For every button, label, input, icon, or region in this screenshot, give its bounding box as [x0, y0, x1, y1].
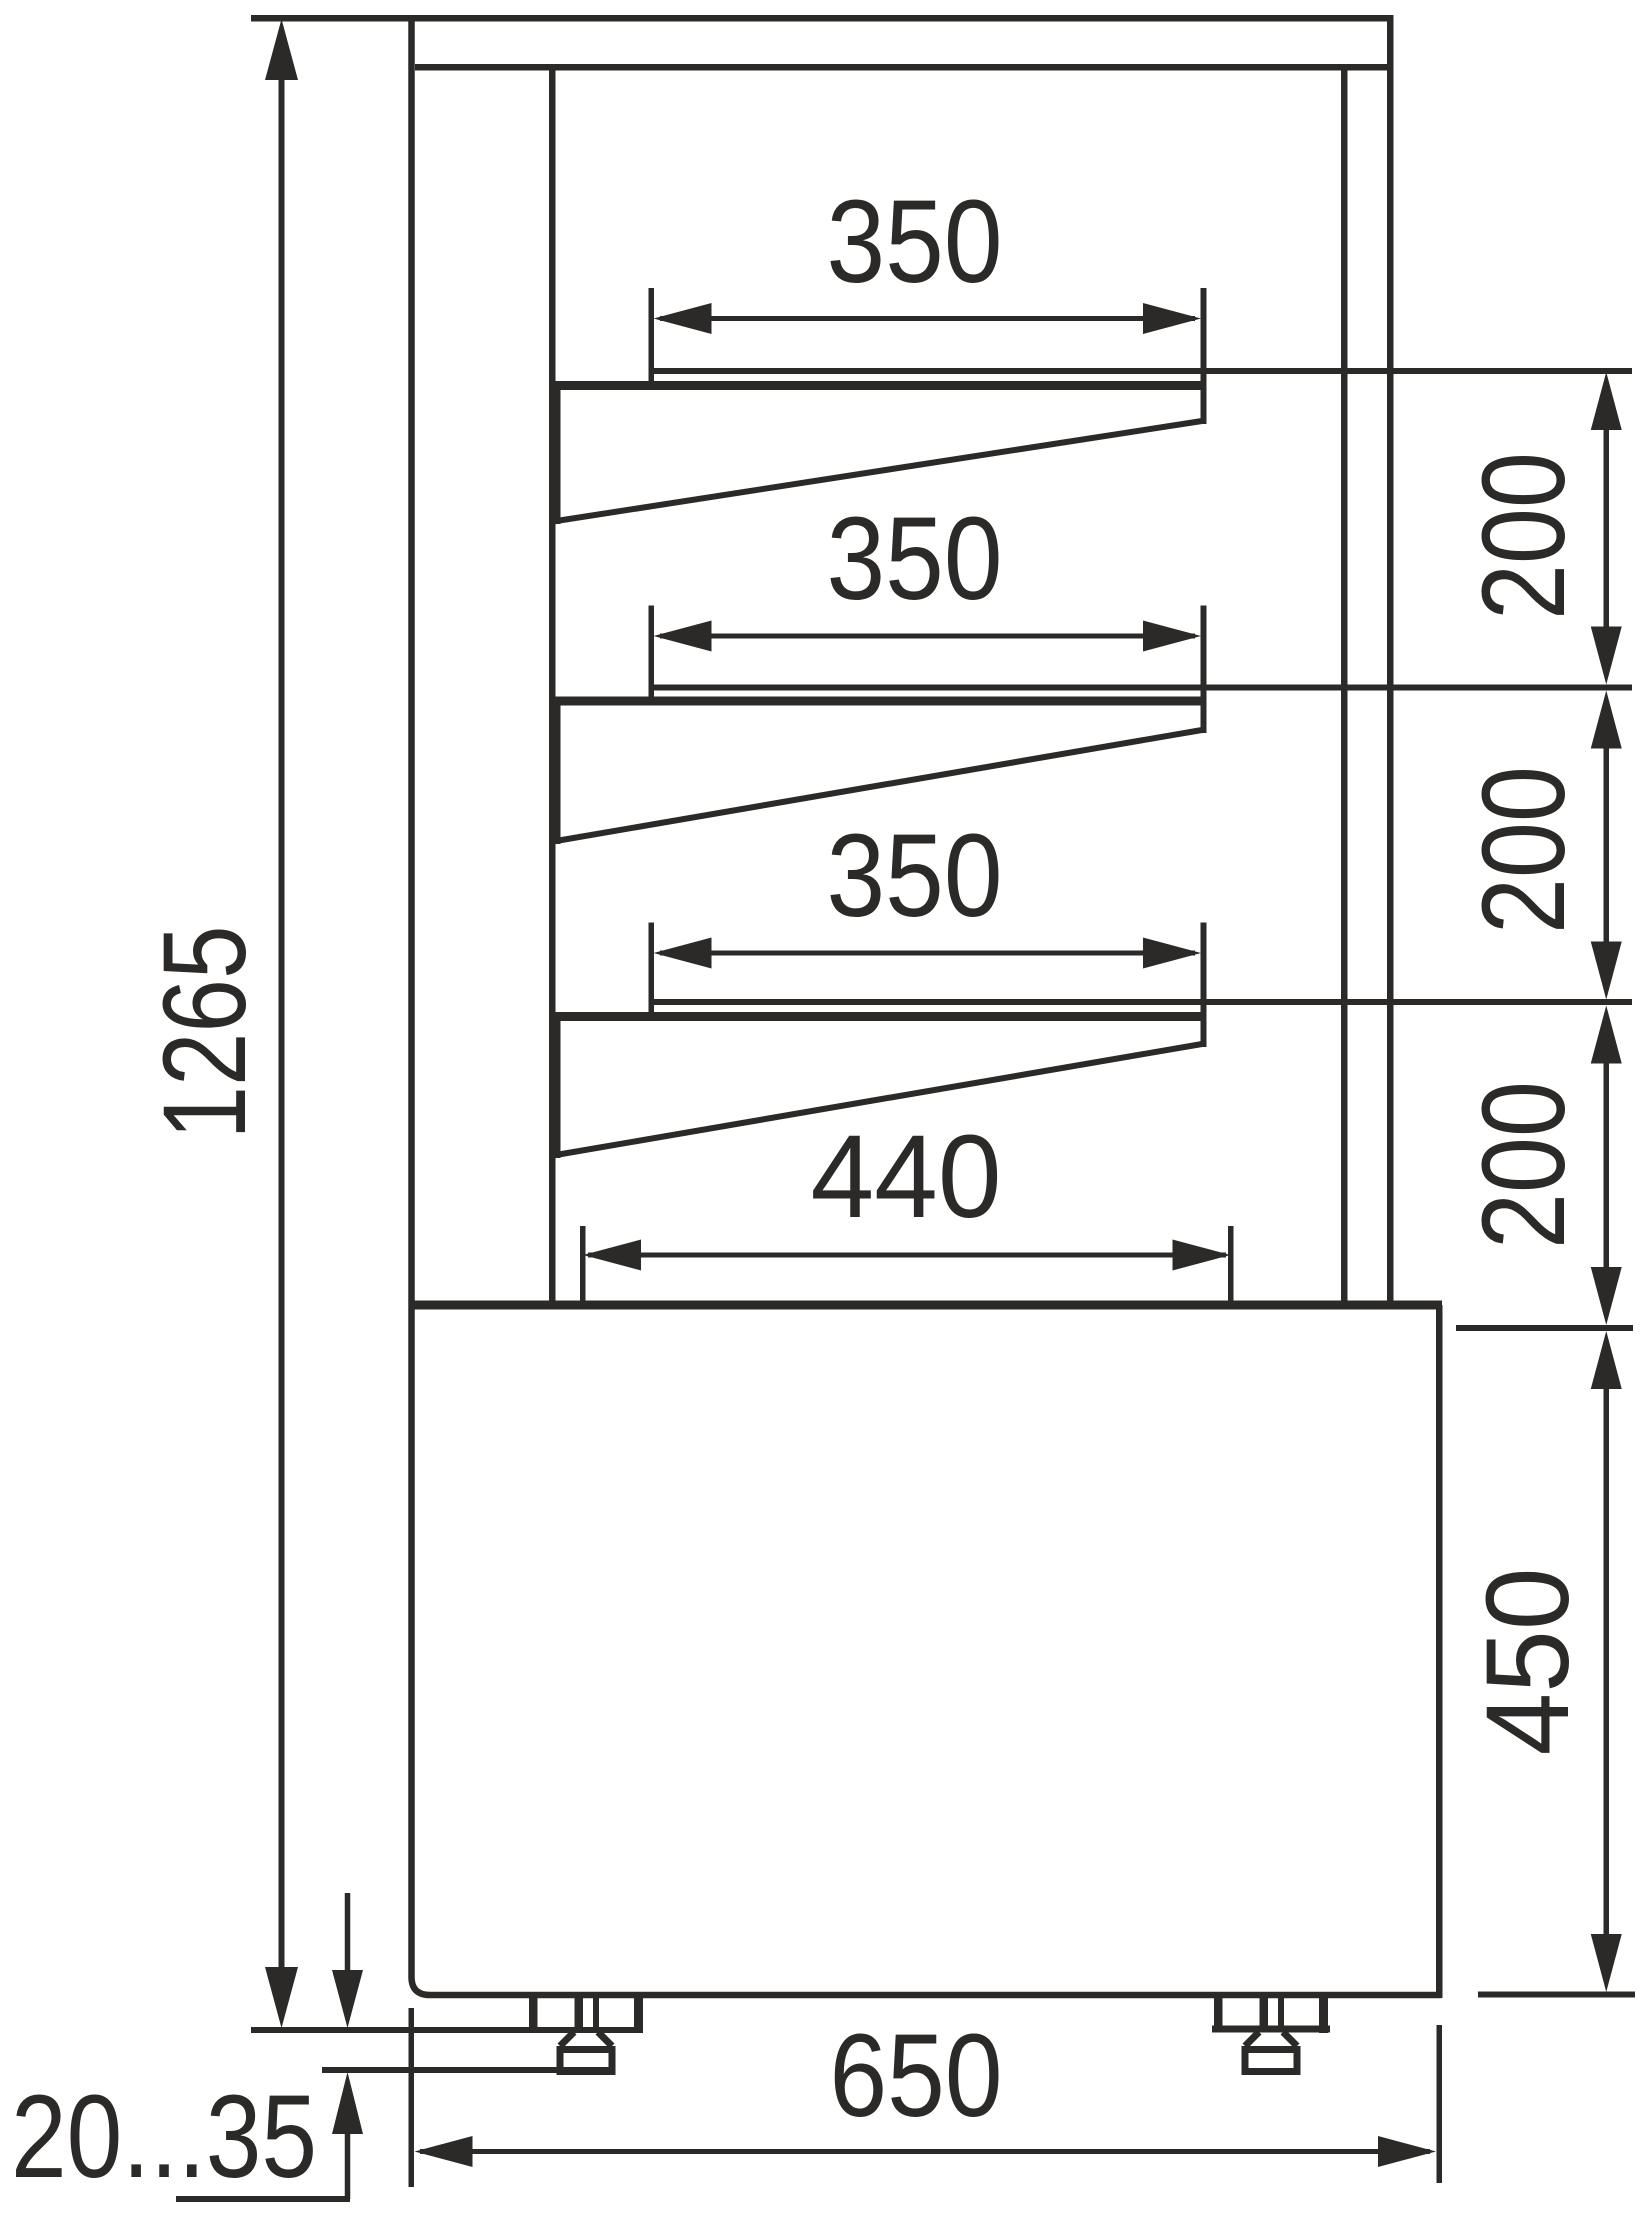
- svg-text:200: 200: [1458, 766, 1590, 934]
- svg-text:20...35: 20...35: [11, 2071, 317, 2203]
- svg-text:1265: 1265: [139, 926, 271, 1140]
- svg-text:440: 440: [811, 1111, 1002, 1243]
- svg-text:450: 450: [1462, 1568, 1594, 1756]
- svg-text:200: 200: [1458, 452, 1590, 620]
- svg-text:350: 350: [827, 493, 1003, 625]
- svg-text:350: 350: [827, 810, 1003, 942]
- svg-text:350: 350: [827, 176, 1003, 308]
- svg-text:650: 650: [830, 2010, 1003, 2142]
- svg-text:200: 200: [1458, 1081, 1590, 1249]
